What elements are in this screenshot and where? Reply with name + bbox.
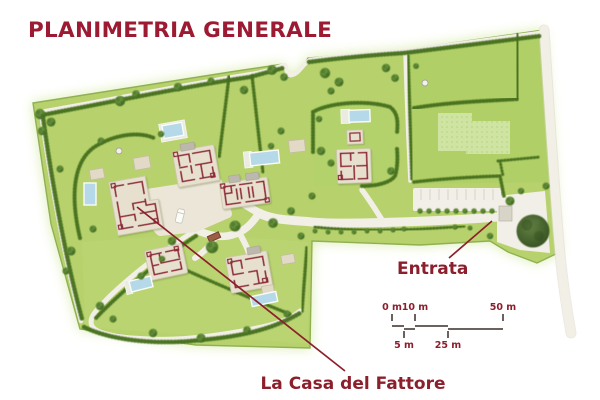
tree-icon (327, 87, 334, 94)
pool-4 (84, 183, 96, 205)
scale-label-50m: 50 m (490, 302, 517, 313)
tree-icon (56, 165, 63, 172)
tree-icon (387, 167, 395, 175)
tree-icon (435, 208, 440, 213)
tree-icon (352, 230, 357, 235)
pool-3 (341, 109, 370, 124)
tree-icon (240, 86, 248, 94)
tree-icon (452, 224, 457, 229)
tree-icon (207, 77, 214, 84)
tree-icon (487, 233, 494, 240)
tree-icon (327, 159, 334, 166)
tree-icon (206, 241, 218, 253)
tree-icon (382, 64, 390, 72)
tree-icon (168, 237, 176, 245)
tree-icon (277, 127, 284, 134)
tree-icon (542, 182, 549, 189)
tree-icon (297, 232, 304, 239)
tree-icon (109, 315, 116, 322)
tree-icon (471, 208, 476, 213)
shed (281, 253, 295, 264)
tree-icon (267, 65, 277, 75)
tree-icon (468, 226, 473, 231)
tree-icon (417, 208, 422, 213)
page-title: PLANIMETRIA GENERALE (28, 18, 332, 43)
tree-icon (132, 90, 140, 98)
tree-icon (66, 246, 75, 255)
tree-icon (229, 220, 240, 231)
well-icon (116, 148, 122, 154)
tree-icon (505, 196, 514, 205)
tree-icon (489, 208, 494, 213)
tree-icon (444, 208, 449, 213)
site-plan-page: PLANIMETRIA GENERALE Entrata La Casa del… (0, 0, 600, 400)
tree-icon (334, 77, 343, 86)
scale-label-0m: 0 m (382, 302, 402, 313)
tree-icon (89, 225, 96, 232)
shed (288, 139, 305, 153)
tree-icon (158, 131, 165, 138)
tree-icon (426, 208, 431, 213)
tree-icon (518, 188, 525, 195)
tree-icon (326, 230, 331, 235)
tree-icon (320, 68, 330, 78)
tree-icon (174, 83, 182, 91)
tree-icon (413, 63, 419, 69)
tree-icon (62, 267, 69, 274)
tree-icon (38, 127, 46, 135)
well-icon (422, 80, 428, 86)
tree-icon (283, 310, 290, 317)
tree-icon (402, 227, 407, 232)
scale-label-10m: 10 m (402, 302, 429, 313)
tree-icon (35, 109, 45, 119)
tree-icon (196, 333, 205, 342)
tree-icon (287, 207, 295, 215)
tree-icon (96, 302, 104, 310)
tree-icon (308, 192, 315, 199)
tree-icon (313, 229, 318, 234)
tree-icon (115, 96, 125, 106)
site-plan-map: PLANIMETRIA GENERALE Entrata La Casa del… (0, 0, 600, 400)
tree-icon (46, 117, 55, 126)
tree-icon (480, 208, 485, 213)
tree-icon (462, 208, 467, 213)
tree-icon (391, 74, 399, 82)
tree-icon (365, 229, 370, 234)
gazebo (347, 130, 363, 145)
tree-icon (268, 218, 278, 228)
tree-icon (317, 147, 325, 155)
parking-area (413, 188, 501, 211)
tree-icon (453, 208, 458, 213)
scale-label-5m: 5 m (394, 340, 414, 351)
villa-3 (336, 148, 371, 183)
tree-icon (391, 228, 396, 233)
tree-icon (97, 137, 104, 144)
tree-icon (268, 143, 275, 150)
scale-bar: 0 m 10 m 50 m 5 m 25 m (382, 302, 516, 351)
tree-icon (149, 329, 157, 337)
tree-icon (137, 272, 144, 279)
tree-icon (378, 229, 383, 234)
tree-icon (316, 116, 323, 123)
entrance-label: Entrata (397, 259, 468, 279)
scale-label-25m: 25 m (435, 340, 462, 351)
farmhouse-label: La Casa del Fattore (260, 374, 445, 394)
tree-icon (159, 256, 166, 263)
tree-icon (243, 326, 251, 334)
shed (89, 168, 105, 180)
entrance-large-tree-icon (517, 215, 550, 248)
tree-icon (280, 73, 288, 81)
tree-icon (339, 230, 344, 235)
shed (133, 156, 151, 171)
gate-structure (499, 206, 512, 221)
